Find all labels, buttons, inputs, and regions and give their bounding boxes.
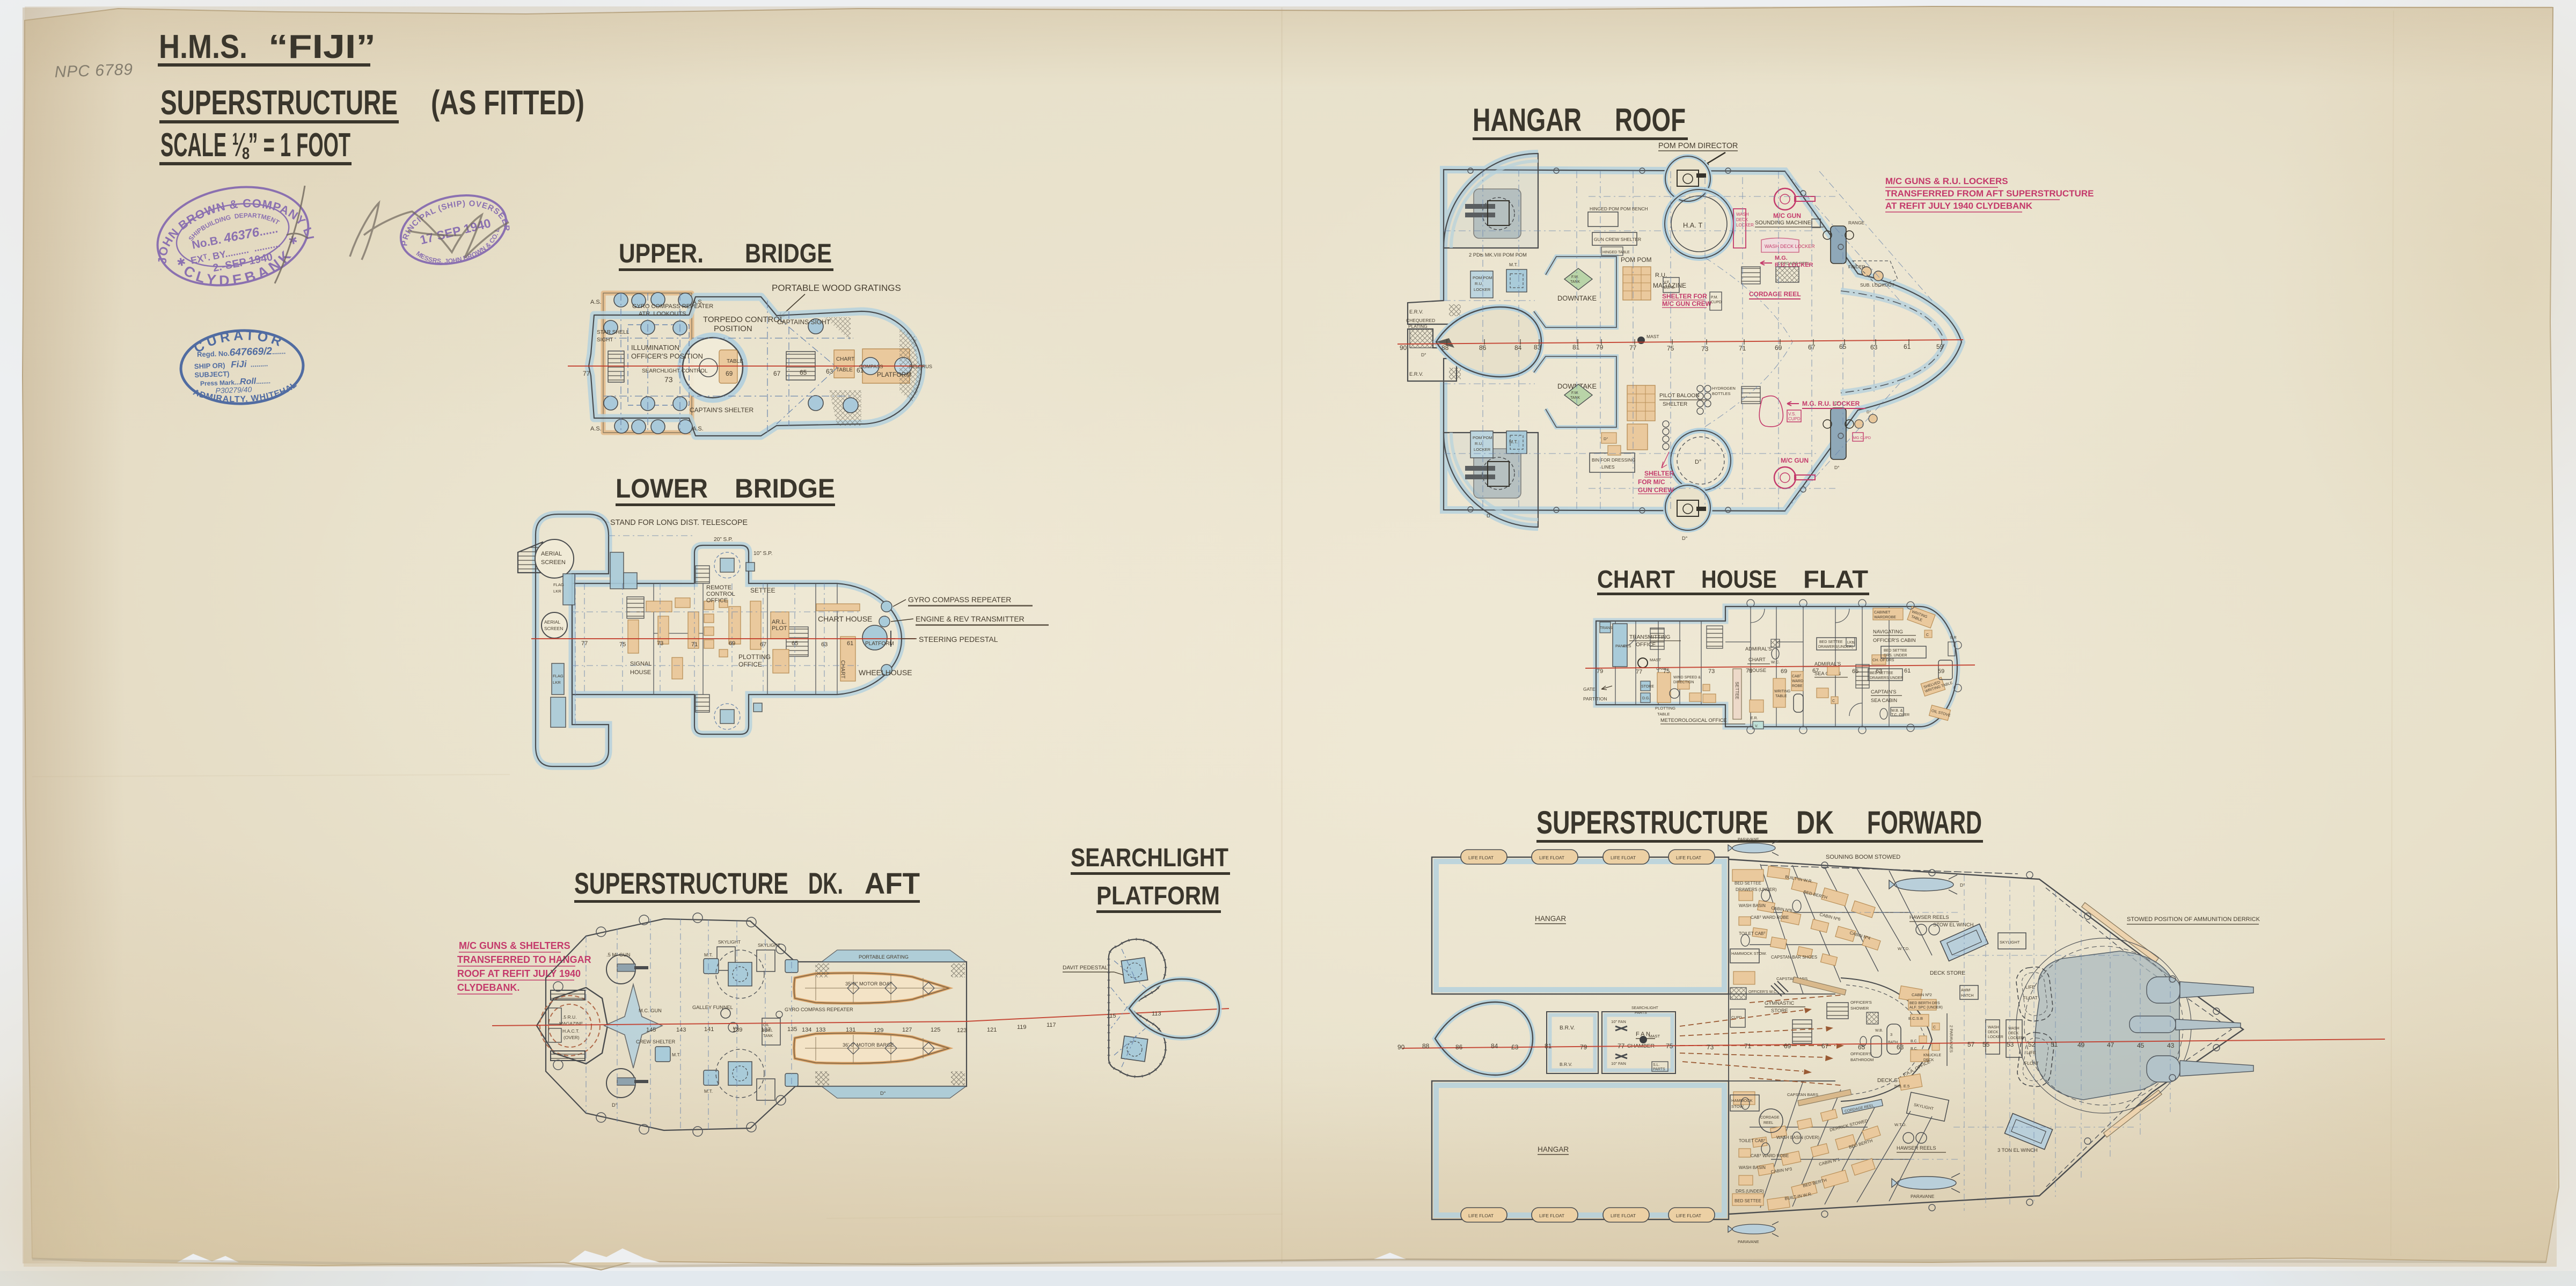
svg-text:B.C.S.B: B.C.S.B [1908,1016,1923,1021]
svg-text:90: 90 [1397,1043,1405,1051]
svg-text:75: 75 [1666,1042,1673,1050]
svg-text:WASH BASIN: WASH BASIN [1739,1165,1766,1170]
svg-text:WASH BASIN (OVER): WASH BASIN (OVER) [1776,1135,1819,1140]
svg-text:47: 47 [2107,1041,2114,1049]
svg-text:DRS.(UNDER): DRS.(UNDER) [1736,1189,1764,1194]
svg-text:DECK: DECK [2008,1032,2019,1035]
svg-text:3: 3 [1890,1032,1892,1037]
svg-text:WASH: WASH [2008,1027,2019,1031]
svg-text:KNUCKLE: KNUCKLE [1923,1054,1941,1057]
svg-text:55: 55 [1982,1041,1990,1048]
svg-text:ALF. SPC (UNDER): ALF. SPC (UNDER) [1909,1006,1943,1010]
svg-text:81: 81 [1545,1042,1552,1050]
svg-text:OFFICER'S W.C.: OFFICER'S W.C. [1748,990,1777,994]
svg-text:43: 43 [2167,1042,2175,1049]
svg-text:CABᵀ WARD ROBE: CABᵀ WARD ROBE [1751,915,1789,920]
svg-text:£3: £3 [1511,1043,1519,1051]
svg-text:79: 79 [1580,1043,1587,1051]
svg-text:C: C [1933,1026,1936,1029]
svg-text:OFFICER'S: OFFICER'S [1850,1000,1872,1005]
svg-text:63: 63 [1897,1043,1904,1051]
svg-text:CORDAGE: CORDAGE [1760,1116,1780,1120]
svg-text:73: 73 [1707,1043,1714,1051]
svg-text:53: 53 [2007,1041,2014,1048]
svg-text:71: 71 [1744,1042,1752,1050]
svg-text:CABᵀ WARD ROBE: CABᵀ WARD ROBE [1751,1153,1789,1158]
svg-text:CAPSTAN BAR SHOES: CAPSTAN BAR SHOES [1771,955,1817,960]
svg-text:BED SETTEE: BED SETTEE [1735,1199,1761,1203]
svg-text:HAMMOCK STOW.: HAMMOCK STOW. [1731,951,1767,956]
svg-text:52: 52 [2028,1041,2036,1048]
svg-text:2 PARAVANES: 2 PARAVANES [1949,1025,1954,1053]
svg-text:BED SETTEE: BED SETTEE [1735,881,1761,886]
svg-text:B.C.: B.C. [1911,1047,1918,1051]
svg-text:49: 49 [2077,1041,2085,1049]
svg-text:77: 77 [1618,1042,1625,1050]
svg-text:SHOWER: SHOWER [1850,1006,1869,1011]
svg-text:88: 88 [1422,1042,1430,1050]
svg-text:45: 45 [2137,1042,2145,1049]
svg-text:CABIN Nº6: CABIN Nº6 [1819,912,1841,922]
svg-text:CAPSTAN BARS: CAPSTAN BARS [1787,1092,1818,1097]
svg-text:B.C.: B.C. [1911,1040,1918,1043]
svg-text:67: 67 [1821,1042,1829,1050]
svg-text:57: 57 [1967,1041,1975,1048]
svg-text:BATHROOM: BATHROOM [1850,1057,1874,1062]
svg-text:DRAWERS (UNDER): DRAWERS (UNDER) [1736,887,1777,892]
svg-text:51: 51 [2051,1041,2058,1048]
svg-text:W.B.: W.B. [1875,1029,1883,1033]
svg-text:TOILET CABᵀ: TOILET CABᵀ [1739,1138,1766,1143]
svg-text:65: 65 [1858,1043,1865,1051]
svg-text:BED BERTH DRS: BED BERTH DRS [1909,1002,1940,1005]
svg-text:84: 84 [1491,1042,1498,1050]
svg-text:REEL: REEL [1763,1121,1773,1125]
svg-text:CABIN Nº1: CABIN Nº1 [1818,1157,1840,1166]
svg-text:CABIN Nº2: CABIN Nº2 [1912,992,1932,997]
svg-text:WASH BASIN: WASH BASIN [1739,903,1766,908]
svg-text:69: 69 [1784,1042,1791,1050]
svg-text:86: 86 [1455,1043,1463,1051]
svg-text:N.B. E.5: N.B. E.5 [1894,1084,1909,1088]
svg-text:OFFICER'S: OFFICER'S [1850,1051,1872,1056]
svg-text:LOCKER: LOCKER [2008,1036,2024,1040]
